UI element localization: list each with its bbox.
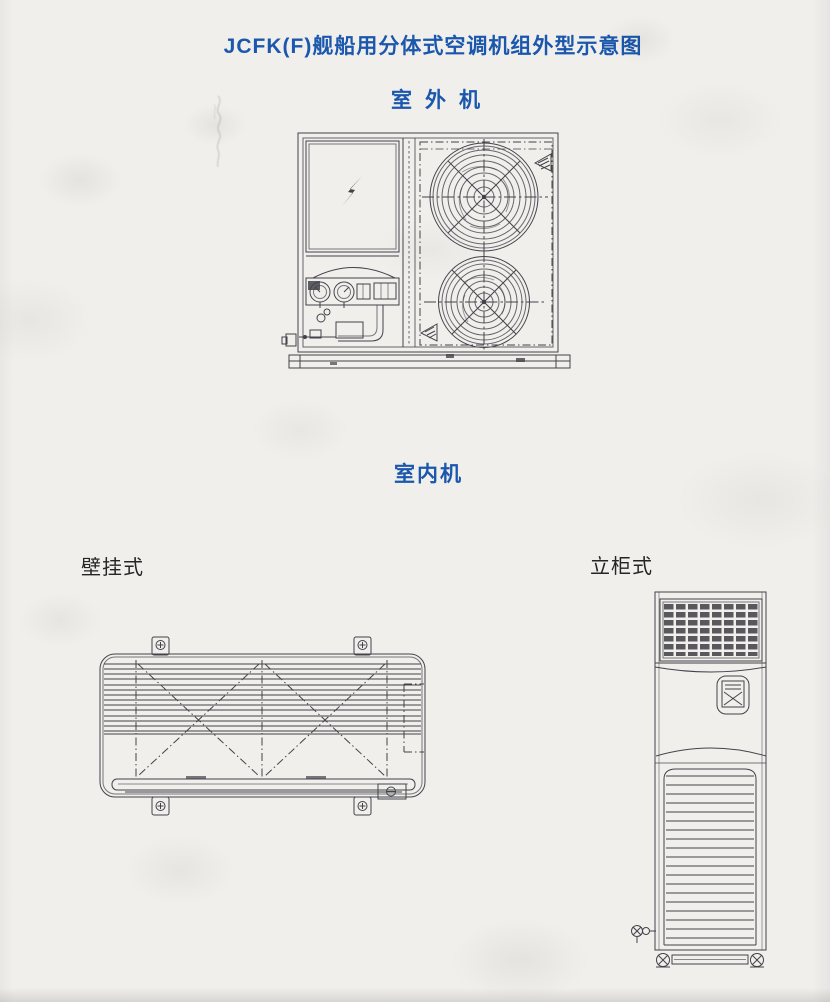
air-outlet-grille-icon: [660, 599, 762, 661]
lightning-icon: [342, 176, 362, 206]
corner-weld-mark-icon: [535, 154, 551, 171]
wall-unit-drawing: [75, 595, 450, 830]
corner-weld-mark-icon: [421, 324, 437, 341]
drain-valve-icon: [632, 926, 657, 944]
electrical-panel-door: [306, 141, 399, 252]
air-intake-louver-icon: [664, 769, 756, 945]
compressor-piping: [282, 305, 383, 346]
base-assembly: [656, 954, 764, 968]
page-title: JCFK(F)舰船用分体式空调机组外型示意图: [18, 30, 830, 60]
cabinet-unit-drawing: [625, 580, 815, 980]
caster-bolt-icon: [750, 954, 764, 968]
side-cutout-mark: [404, 684, 424, 752]
mounting-tab-screw-icon: [354, 637, 371, 655]
fan-guard-icon: [424, 250, 544, 352]
air-outlet-bar: [112, 776, 415, 792]
fan-guard-icon: [422, 139, 548, 256]
section-label-indoor-unit: 室内机: [394, 458, 463, 488]
type-label-wall-mounted: 壁挂式: [81, 551, 144, 580]
mounting-tab-screw-icon: [152, 797, 169, 815]
centerline-bracing: [136, 660, 387, 778]
compressor-dome: [313, 268, 395, 279]
mounting-tab-screw-icon: [354, 797, 371, 815]
base-frame: [289, 354, 570, 368]
control-panel-icon: [717, 676, 749, 714]
outdoor-unit-drawing: [280, 116, 580, 376]
scan-smudge-artifact: [206, 92, 232, 170]
gauge-panel: [306, 278, 399, 308]
caster-bolt-icon: [656, 954, 670, 968]
section-label-outdoor-unit: 室外机: [391, 84, 493, 114]
mounting-tab-screw-icon: [152, 637, 169, 655]
scanned-page: JCFK(F)舰船用分体式空调机组外型示意图 室外机 室内机 壁挂式 立柜式: [0, 0, 830, 1002]
type-label-floor-cabinet: 立柜式: [590, 550, 653, 579]
